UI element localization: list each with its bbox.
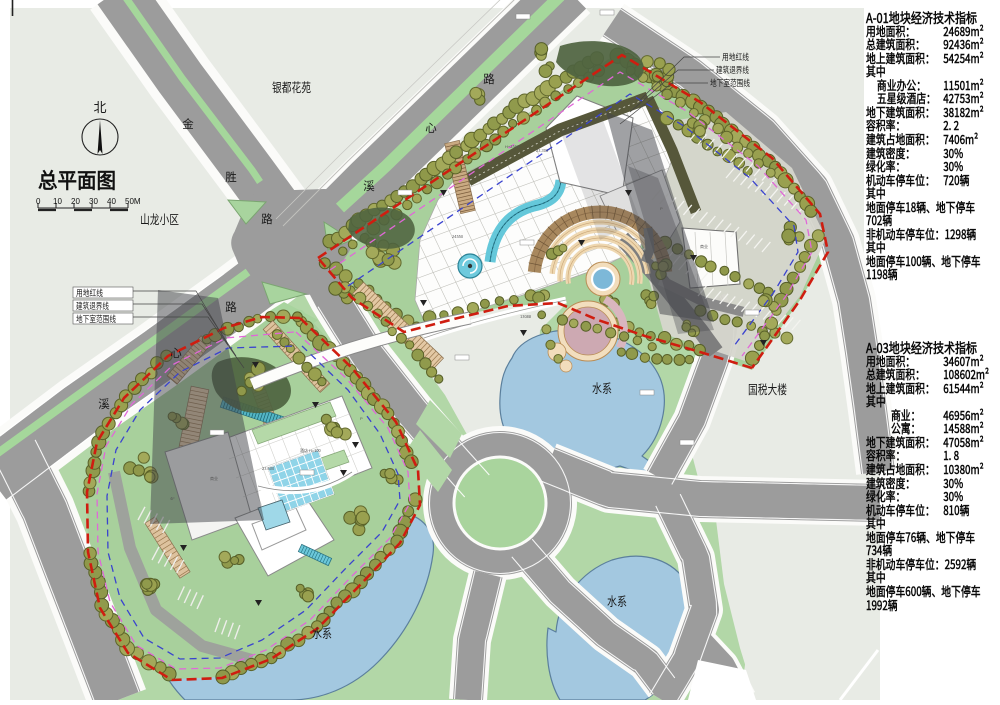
svg-text:H+25A9: H+25A9 [505, 144, 519, 150]
svg-text:商业: 商业 [700, 243, 708, 250]
svg-text:用地红线: 用地红线 [76, 287, 103, 299]
svg-text:40: 40 [107, 197, 116, 206]
svg-text:23.300: 23.300 [536, 148, 549, 154]
svg-text:建筑退界线: 建筑退界线 [76, 300, 109, 312]
svg-text:胜: 胜 [225, 169, 237, 185]
svg-text:P: P [360, 416, 363, 422]
svg-text:酒店 H=100: 酒店 H=100 [300, 447, 322, 454]
svg-text:地下室范围线: 地下室范围线 [76, 313, 116, 325]
svg-text:1F: 1F [680, 251, 685, 257]
svg-text:金: 金 [182, 116, 194, 132]
svg-text:国税大楼: 国税大楼 [748, 379, 787, 398]
svg-text:路: 路 [225, 299, 237, 315]
svg-text:4F: 4F [170, 496, 175, 502]
svg-text:路: 路 [261, 211, 273, 227]
svg-text:路: 路 [483, 71, 495, 87]
svg-text:心: 心 [170, 345, 182, 361]
svg-text:溪: 溪 [98, 396, 110, 412]
svg-text:用地红线: 用地红线 [722, 51, 749, 63]
svg-text:P: P [660, 206, 663, 212]
svg-text:50M: 50M [125, 197, 141, 206]
svg-text:溪: 溪 [363, 178, 375, 194]
svg-text:商业: 商业 [210, 475, 218, 482]
svg-text:20: 20 [71, 197, 80, 206]
svg-text:水系: 水系 [312, 623, 332, 642]
svg-text:建筑退界线: 建筑退界线 [716, 64, 749, 76]
svg-text:银都花苑: 银都花苑 [272, 77, 311, 96]
svg-text:水系: 水系 [607, 591, 627, 610]
svg-text:总平面图: 总平面图 [38, 165, 116, 195]
svg-text:24550: 24550 [452, 234, 464, 240]
svg-text:23.400: 23.400 [262, 466, 275, 472]
svg-text:地下室范围线: 地下室范围线 [710, 77, 750, 89]
svg-text:北: 北 [93, 97, 106, 116]
svg-text:心: 心 [425, 120, 437, 136]
svg-text:10: 10 [53, 197, 62, 206]
svg-text:30: 30 [89, 197, 98, 206]
svg-text:13088: 13088 [520, 314, 532, 320]
svg-text:水系: 水系 [592, 378, 612, 397]
svg-text:山龙小区: 山龙小区 [140, 209, 179, 228]
